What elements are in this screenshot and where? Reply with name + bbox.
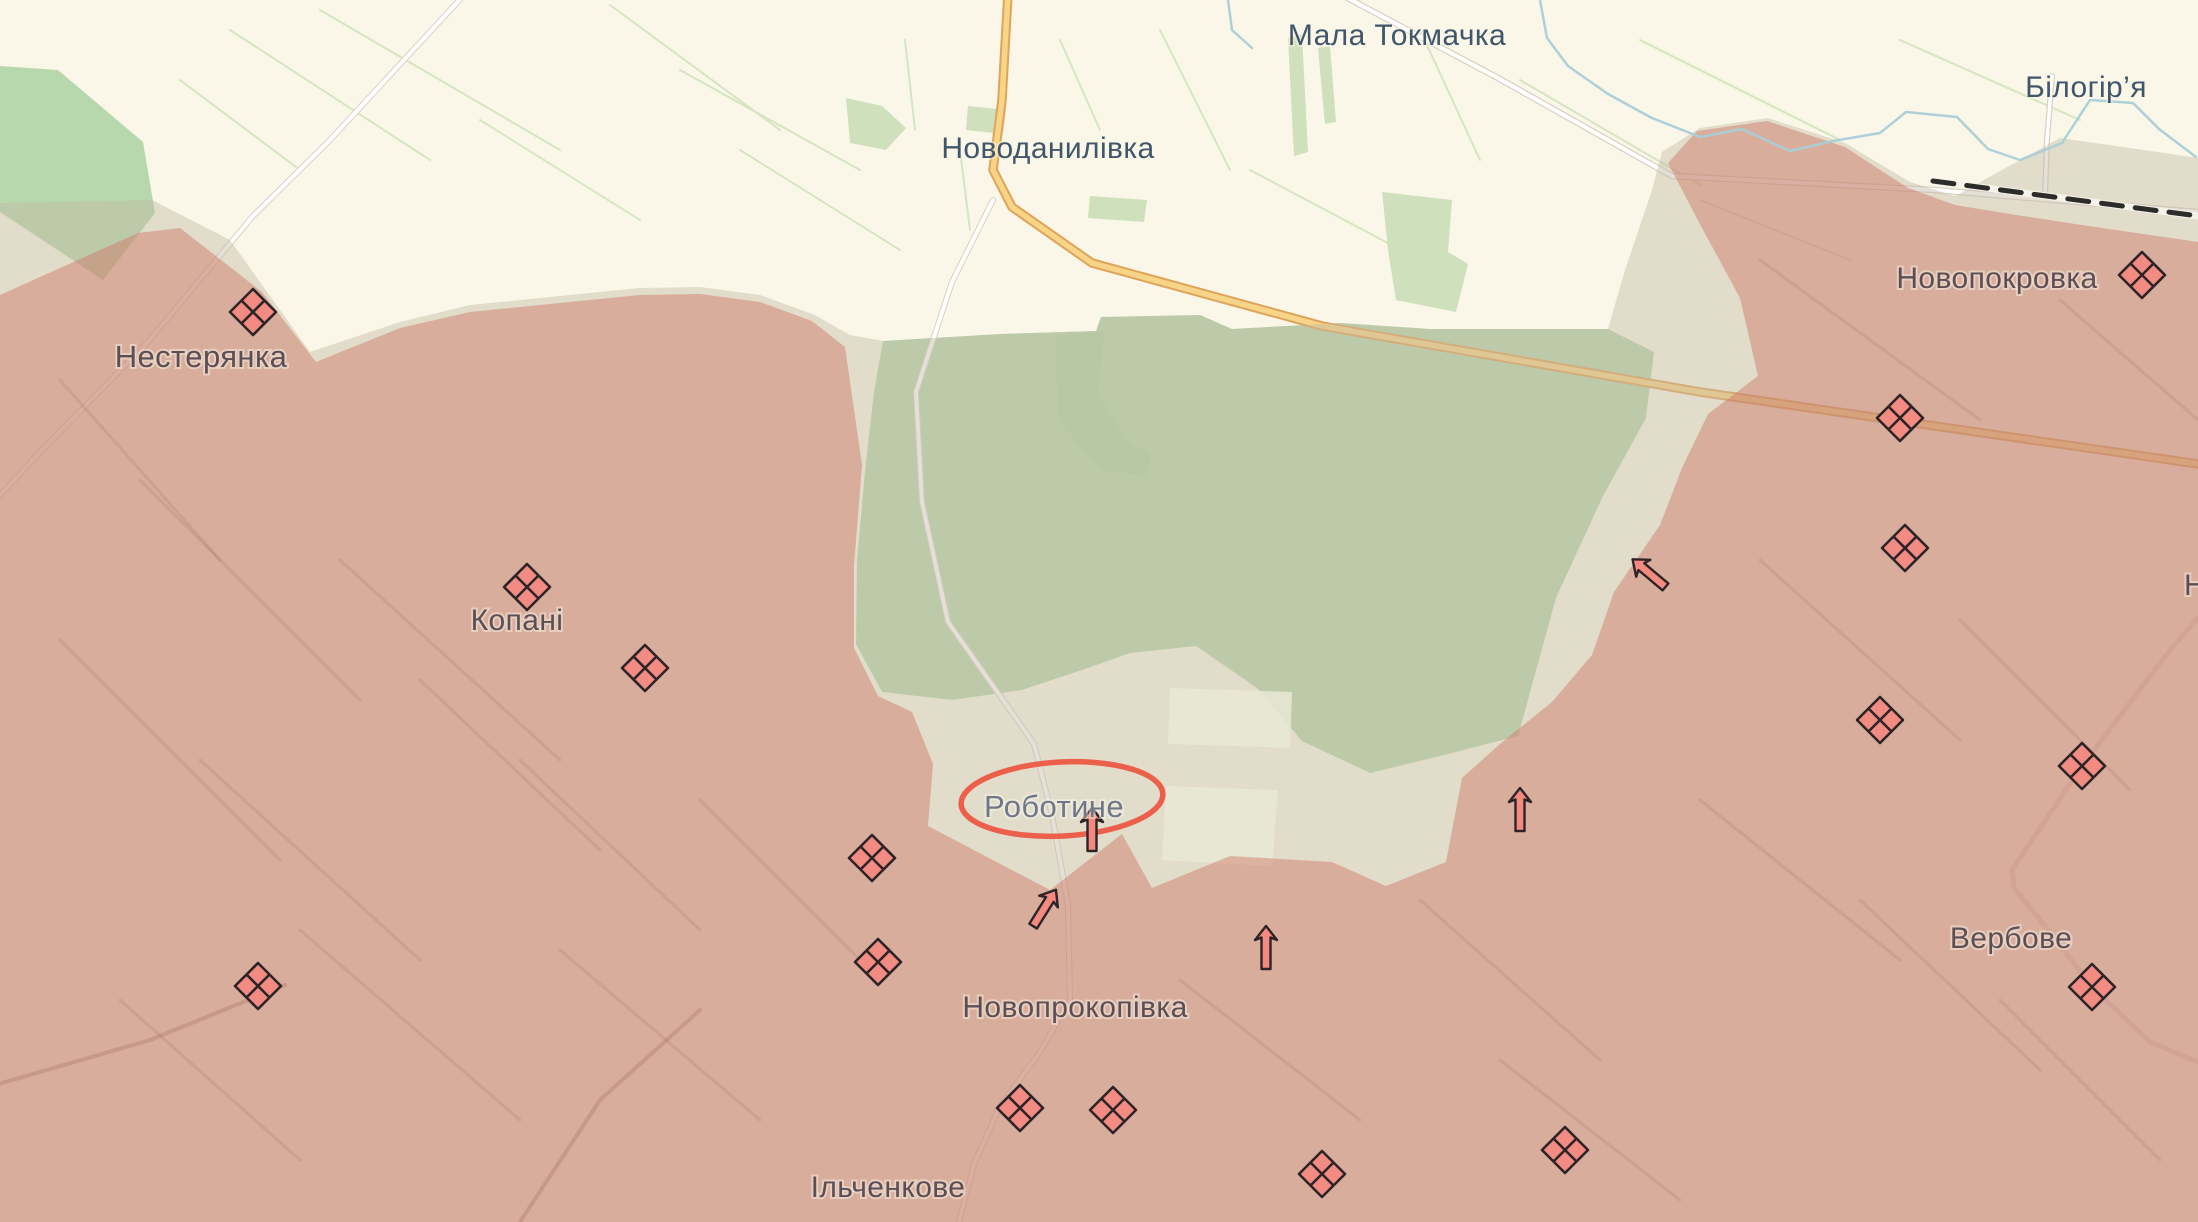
terrain-shape xyxy=(1318,46,1336,124)
town-label: Н xyxy=(2184,569,2198,602)
terrain-shape xyxy=(1162,786,1278,866)
terrain-layer xyxy=(0,0,2198,1222)
terrain-shape xyxy=(1382,192,1468,312)
town-label: Новопрокопівка xyxy=(962,991,1187,1024)
town-label: Новопокровка xyxy=(1896,262,2097,295)
town-label: Роботине xyxy=(984,789,1124,824)
terrain-shape xyxy=(1168,688,1292,748)
town-label: Вербове xyxy=(1950,922,2072,955)
town-label: Ільченкове xyxy=(811,1171,966,1204)
town-label: Мала Токмачка xyxy=(1288,19,1506,52)
terrain-shape xyxy=(1088,196,1147,222)
town-label: Копані xyxy=(471,604,564,637)
map-svg: Мала ТокмачкаБілогір’яНоводанилівкаНесте… xyxy=(0,0,2198,1222)
town-label: Нестерянка xyxy=(115,339,288,374)
terrain-shape xyxy=(1288,34,1308,156)
town-label: Новоданилівка xyxy=(941,132,1154,165)
town-label: Білогір’я xyxy=(2025,71,2147,104)
terrain-shape xyxy=(846,98,906,150)
map-canvas[interactable]: Мала ТокмачкаБілогір’яНоводанилівкаНесте… xyxy=(0,0,2198,1222)
